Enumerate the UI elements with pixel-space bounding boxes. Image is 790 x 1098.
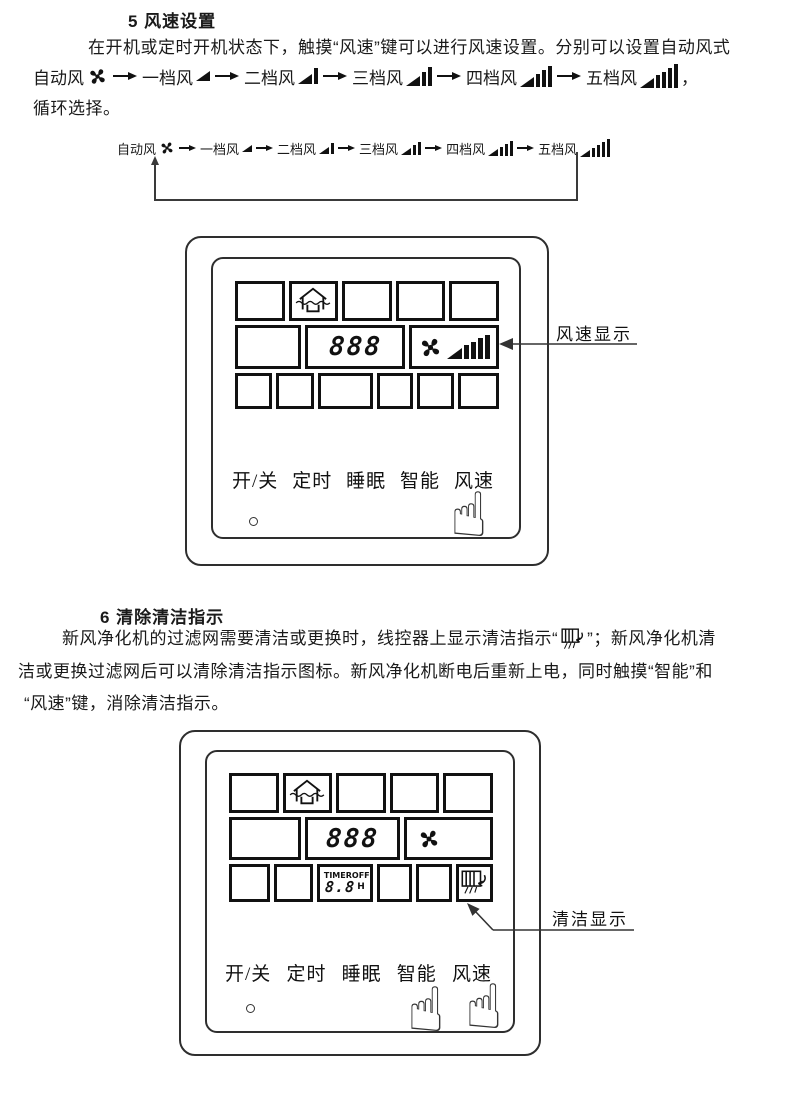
lcd-row-middle: 888 [229, 817, 493, 860]
lcd-segment-cell [417, 373, 454, 409]
speed-level-3-icon [401, 142, 421, 155]
lcd-segment-cell [377, 864, 412, 902]
lcd-segment-cell [274, 864, 313, 902]
power-indicator-dot [246, 1004, 255, 1013]
arrow-right-icon [557, 72, 581, 80]
loop-arrow-left-line [154, 165, 156, 201]
lcd-segment-cell [318, 373, 373, 409]
timer-unit: H [357, 880, 365, 894]
speed-level-2-icon [298, 68, 318, 84]
speed-step-auto: 自动风 [33, 64, 108, 89]
speed-level-5-icon [580, 139, 610, 157]
arrow-right-icon [437, 72, 461, 80]
speed-step-1: 一档风 [200, 139, 252, 158]
lcd-row-top [235, 281, 499, 321]
speed-step-3: 三档风 [359, 139, 421, 158]
speed-step-4: 四档风 [446, 139, 513, 158]
lcd-segment-cell [235, 325, 301, 369]
arrow-right-icon [179, 145, 196, 151]
button-timer: 定时 [286, 959, 326, 986]
arrow-right-icon [113, 72, 137, 80]
lcd-row-bottom [235, 373, 499, 409]
speed-level-1-icon [196, 71, 210, 81]
section6-line2: 洁或更换过滤网后可以清除清洁指示图标。新风净化机断电后重新上电，同时触摸“智能”… [18, 660, 713, 684]
arrow-right-icon [517, 145, 534, 151]
lcd-segment-cell [396, 281, 446, 321]
lcd-segment-cell [283, 773, 333, 813]
lcd-row-bottom: TIMER OFF 8.8 H [229, 864, 493, 902]
loop-arrow-bottom-line [154, 199, 578, 201]
speed-step-4: 四档风 [466, 64, 552, 89]
lcd-display: 888 [229, 773, 493, 902]
lcd-segment-cell [443, 773, 493, 813]
loop-arrow-right-line [576, 152, 578, 201]
lcd-segment-cell [336, 773, 386, 813]
fan-speed-sequence-large: 自动风 一档风 二档风 三档风 四档风 [33, 60, 698, 92]
speed-level-4-icon [520, 66, 552, 87]
lcd-segment-cell [235, 373, 272, 409]
speed-step-2: 二档风 [277, 139, 334, 158]
clean-indicator-cell [456, 864, 493, 902]
fan-speed-display-cell [409, 325, 499, 369]
filter-clean-icon [560, 628, 585, 651]
speed-step-1: 一档风 [142, 64, 210, 89]
section5-outro: 循环选择。 [33, 97, 121, 121]
section6-line1: 新风净化机的过滤网需要清洁或更换时，线控器上显示清洁指示“ ”；新风净化机清 [62, 627, 716, 651]
button-power: 开/关 [225, 959, 271, 986]
annotation-arrow-bent [464, 902, 636, 936]
timer-display-cell: TIMER OFF 8.8 H [317, 864, 373, 902]
button-sleep: 睡眠 [346, 466, 386, 493]
button-timer: 定时 [292, 466, 332, 493]
lcd-segment-cell [377, 373, 413, 409]
fan-icon [87, 66, 108, 87]
pointing-hand-icon: ☝ [450, 484, 488, 546]
speed-level-2-icon [319, 143, 334, 154]
lcd-segment-cell [416, 864, 452, 902]
section6-heading: 6 清除清洁指示 [100, 603, 224, 628]
lcd-row-top [229, 773, 493, 813]
section5-heading: 5 风速设置 [128, 7, 216, 32]
filter-clean-icon [461, 870, 487, 896]
section5-intro: 在开机或定时开机状态下，触摸“风速”键可以进行风速设置。分别可以设置自动风式 [88, 36, 730, 60]
speed-level-4-icon [488, 141, 513, 156]
fan-display-cell [404, 817, 493, 860]
lcd-row-middle: 888 [235, 325, 499, 369]
speed-step-2: 二档风 [244, 64, 318, 89]
arrow-right-icon [256, 145, 273, 151]
lcd-display: 888 [235, 281, 499, 409]
house-ventilation-icon [289, 778, 325, 808]
button-smart: 智能 [400, 466, 440, 493]
trailing-comma: ， [681, 64, 698, 89]
speed-step-5: 五档风 [586, 64, 678, 89]
lcd-number: 888 [325, 824, 380, 854]
lcd-segment-cell [229, 773, 279, 813]
speed-level-5-icon [447, 335, 490, 359]
arrow-right-icon [425, 145, 442, 151]
fan-speed-cycle-diagram: 自动风 一档风 二档风 三档风 四档风 [117, 137, 610, 159]
pointing-hand-icon: ☝ [465, 976, 503, 1038]
lcd-number-cell: 888 [305, 817, 401, 860]
speed-step-5: 五档风 [538, 139, 610, 158]
speed-level-1-icon [242, 145, 252, 152]
speed-step-3: 三档风 [352, 64, 432, 89]
arrow-right-icon [338, 145, 355, 151]
manual-page: 5 风速设置 在开机或定时开机状态下，触摸“风速”键可以进行风速设置。分别可以设… [0, 0, 790, 1098]
arrow-right-icon [215, 72, 239, 80]
speed-level-3-icon [406, 67, 432, 86]
lcd-number-cell: 888 [305, 325, 405, 369]
button-power: 开/关 [232, 466, 278, 493]
lcd-segment-cell [276, 373, 313, 409]
fan-icon [417, 827, 441, 851]
lcd-segment-cell [458, 373, 499, 409]
speed-step-auto: 自动风 [117, 139, 175, 158]
arrow-right-icon [323, 72, 347, 80]
loop-arrow-up-head [151, 156, 159, 165]
lcd-segment-cell [390, 773, 440, 813]
speed-level-5-icon [640, 64, 678, 88]
fan-icon [418, 335, 443, 360]
controller-panel-1: 888 [185, 236, 549, 566]
lcd-segment-cell [229, 817, 301, 860]
timer-value: 8.8 [325, 880, 356, 894]
controller-panel-2: 888 [179, 730, 541, 1056]
lcd-segment-cell [342, 281, 392, 321]
lcd-segment-cell [235, 281, 285, 321]
lcd-number: 888 [328, 332, 383, 362]
lcd-segment-cell [289, 281, 339, 321]
house-ventilation-icon [295, 286, 331, 316]
fan-icon [159, 140, 175, 156]
touch-button-row: 开/关 定时 睡眠 智能 风速 [225, 959, 492, 986]
power-indicator-dot [249, 517, 258, 526]
section6-line3: “风速”键，消除清洁指示。 [24, 692, 229, 716]
annotation-arrow-left [497, 336, 639, 352]
pointing-hand-icon: ☝ [407, 979, 445, 1041]
lcd-segment-cell [449, 281, 499, 321]
button-sleep: 睡眠 [342, 959, 382, 986]
lcd-segment-cell [229, 864, 270, 902]
